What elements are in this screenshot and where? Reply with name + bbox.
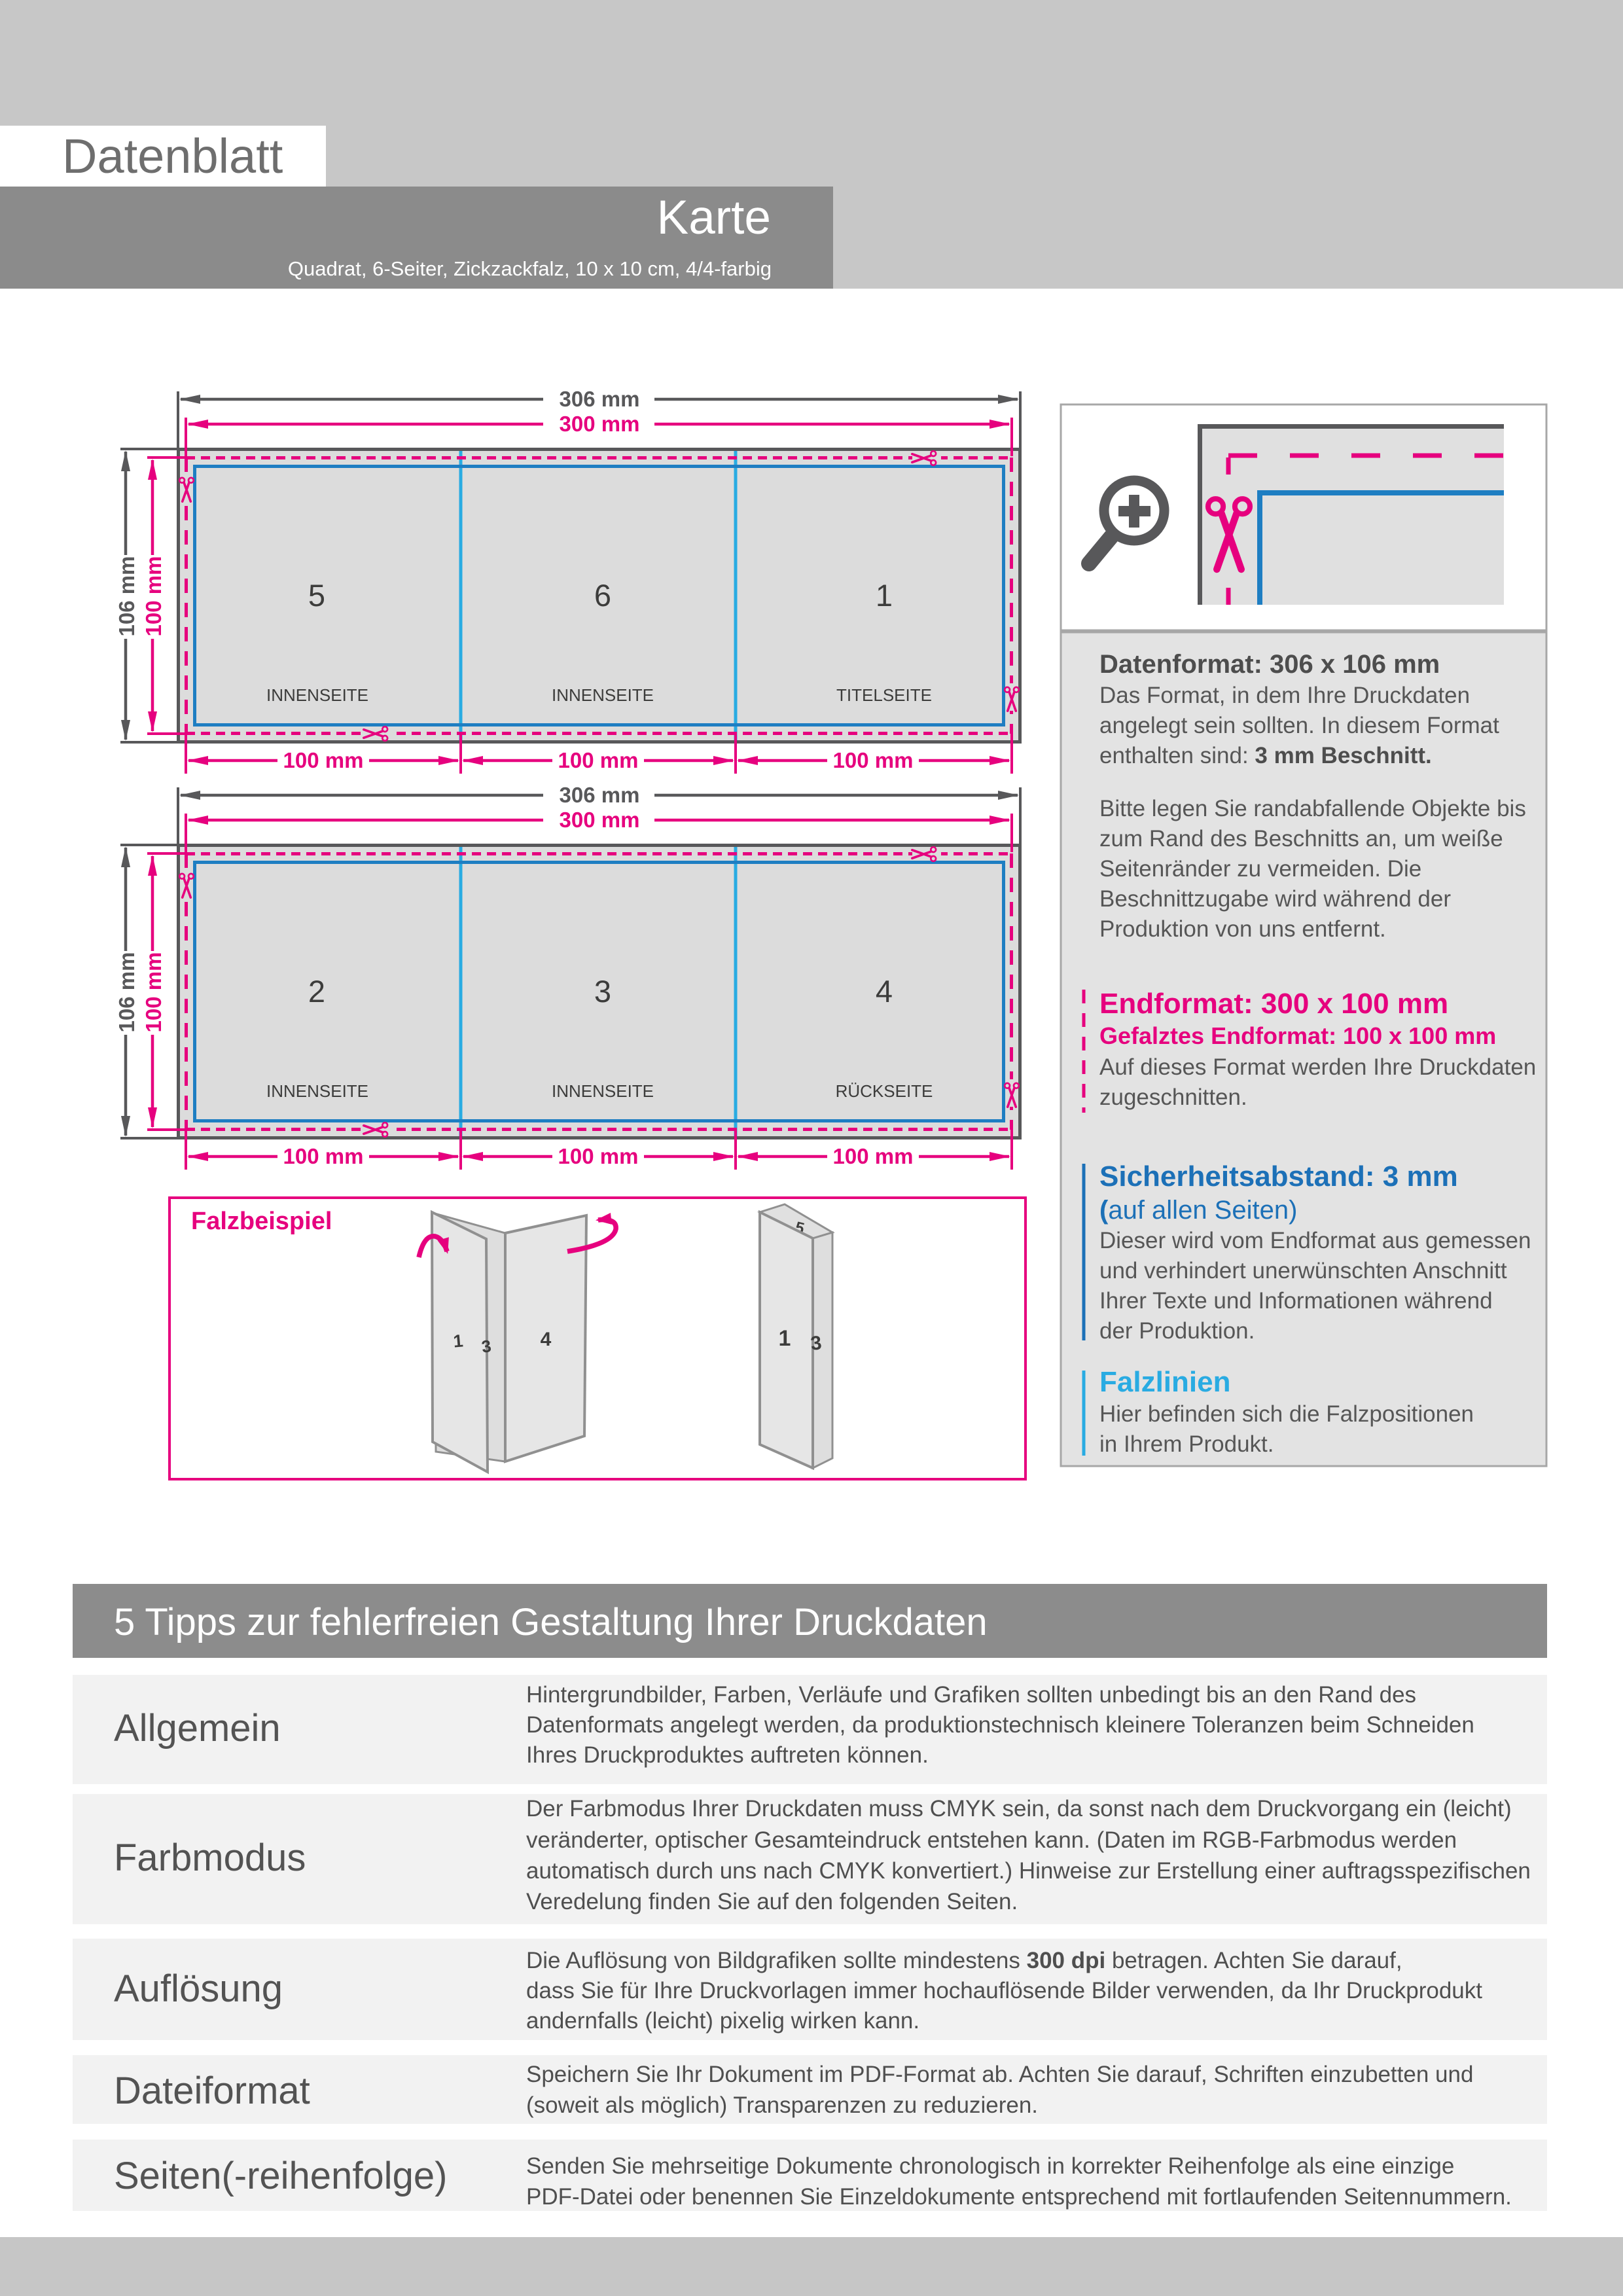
svg-text:Sicherheitsabstand: 3 mm: Sicherheitsabstand: 3 mm [1099, 1160, 1458, 1193]
svg-text:4: 4 [876, 974, 893, 1009]
svg-text:Hier befinden sich die Falzpos: Hier befinden sich die Falzpositionen [1099, 1401, 1474, 1427]
svg-text:Falzlinien: Falzlinien [1099, 1366, 1230, 1398]
svg-text:RÜCKSEITE: RÜCKSEITE [836, 1081, 933, 1101]
svg-text:angelegt sein sollten. In dies: angelegt sein sollten. In diesem Format [1099, 713, 1499, 738]
svg-text:Senden Sie mehrseitige Dokumen: Senden Sie mehrseitige Dokumente chronol… [526, 2153, 1454, 2179]
svg-text:Datenformats angelegt werden,: Datenformats angelegt werden, da produkt… [526, 1712, 1474, 1738]
svg-text:und verhindert unerwünschten A: und verhindert unerwünschten Anschnitt [1099, 1258, 1507, 1283]
svg-text:INNENSEITE: INNENSEITE [552, 685, 654, 705]
svg-text:Die Auflösung von Bildgrafiken: Die Auflösung von Bildgrafiken sollte mi… [526, 1948, 1402, 1973]
svg-text:Bitte legen Sie randabfallende: Bitte legen Sie randabfallende Objekte b… [1099, 796, 1526, 821]
svg-text:1: 1 [779, 1326, 791, 1351]
svg-text:3: 3 [594, 974, 611, 1009]
svg-text:5 Tipps zur fehlerfreien Gesta: 5 Tipps zur fehlerfreien Gestaltung Ihre… [114, 1601, 988, 1643]
svg-text:6: 6 [594, 578, 611, 613]
svg-text:zum Rand des Beschnitts an, um: zum Rand des Beschnitts an, um weiße [1099, 826, 1503, 852]
svg-text:enthalten sind: 3 mm Beschnitt: enthalten sind: 3 mm Beschnitt. [1099, 743, 1432, 768]
svg-text:Karte: Karte [657, 191, 771, 244]
svg-text:Speichern Sie Ihr Dokument im: Speichern Sie Ihr Dokument im PDF-Format… [526, 2062, 1473, 2087]
svg-text:veränderter, optischer Gesamte: veränderter, optischer Gesamteindruck en… [526, 1827, 1457, 1853]
svg-text:1: 1 [452, 1331, 464, 1351]
svg-text:Beschnittzugabe wird während d: Beschnittzugabe wird während der [1099, 886, 1451, 912]
svg-text:Endformat: 300 x 100 mm: Endformat: 300 x 100 mm [1099, 988, 1448, 1020]
svg-text:Ihres Druckproduktes auftreten: Ihres Druckproduktes auftreten können. [526, 1742, 929, 1768]
svg-text:(auf allen Seiten): (auf allen Seiten) [1099, 1196, 1297, 1225]
svg-text:Gefalztes Endformat: 100 x 100: Gefalztes Endformat: 100 x 100 mm [1099, 1022, 1496, 1049]
svg-text:TITELSEITE: TITELSEITE [836, 685, 932, 705]
svg-text:Farbmodus: Farbmodus [114, 1837, 306, 1879]
svg-text:Datenblatt: Datenblatt [62, 129, 283, 183]
svg-text:in Ihrem Produkt.: in Ihrem Produkt. [1099, 1431, 1274, 1457]
svg-text:INNENSEITE: INNENSEITE [266, 685, 368, 705]
svg-text:Seiten(-reihenfolge): Seiten(-reihenfolge) [114, 2155, 447, 2197]
svg-text:2: 2 [308, 974, 325, 1009]
svg-text:automatisch durch uns nach CMY: automatisch durch uns nach CMYK konverti… [526, 1858, 1531, 1884]
svg-text:3: 3 [810, 1332, 823, 1355]
svg-text:Dieser wird vom Endformat aus: Dieser wird vom Endformat aus gemessen [1099, 1228, 1531, 1253]
svg-text:Hintergrundbilder, Farben, Ver: Hintergrundbilder, Farben, Verläufe und … [526, 1682, 1416, 1708]
svg-text:zugeschnitten.: zugeschnitten. [1099, 1085, 1247, 1110]
svg-text:INNENSEITE: INNENSEITE [552, 1081, 654, 1101]
svg-text:4: 4 [541, 1329, 552, 1350]
svg-text:Falzbeispiel: Falzbeispiel [191, 1208, 332, 1235]
svg-text:Veredelung finden Sie auf den: Veredelung finden Sie auf den folgenden … [526, 1889, 1018, 1914]
svg-text:(soweit als möglich) Transpare: (soweit als möglich) Transparenzen zu re… [526, 2092, 1038, 2118]
svg-text:Ihrer Texte und Informationen: Ihrer Texte und Informationen während [1099, 1288, 1493, 1314]
svg-text:5: 5 [308, 578, 325, 613]
svg-text:1: 1 [876, 578, 893, 613]
svg-text:Seitenränder zu vermeiden. Die: Seitenränder zu vermeiden. Die [1099, 856, 1421, 882]
svg-text:andernfalls (leicht) pixelig w: andernfalls (leicht) pixelig wirken kann… [526, 2008, 919, 2034]
svg-text:INNENSEITE: INNENSEITE [266, 1081, 368, 1101]
svg-text:Datenformat: 306 x 106 mm: Datenformat: 306 x 106 mm [1099, 650, 1440, 679]
svg-text:Das Format, in dem Ihre Druckd: Das Format, in dem Ihre Druckdaten [1099, 683, 1470, 708]
svg-text:Produktion von uns entfernt.: Produktion von uns entfernt. [1099, 916, 1386, 942]
svg-text:dass Sie für Ihre Druckvorlage: dass Sie für Ihre Druckvorlagen immer ho… [526, 1978, 1482, 2003]
svg-text:Auf dieses Format werden Ihre: Auf dieses Format werden Ihre Druckdaten [1099, 1054, 1536, 1080]
svg-text:der Produktion.: der Produktion. [1099, 1318, 1255, 1344]
svg-text:Der Farbmodus Ihrer Druckdaten: Der Farbmodus Ihrer Druckdaten muss CMYK… [526, 1796, 1512, 1821]
svg-text:Quadrat, 6-Seiter, Zickzackfal: Quadrat, 6-Seiter, Zickzackfalz, 10 x 10… [288, 257, 772, 280]
svg-text:Allgemein: Allgemein [114, 1707, 281, 1749]
svg-text:Auflösung: Auflösung [114, 1967, 283, 2010]
svg-text:PDF-Datei oder benennen Sie Ei: PDF-Datei oder benennen Sie Einzeldokume… [526, 2184, 1512, 2210]
svg-text:Dateiformat: Dateiformat [114, 2070, 310, 2112]
